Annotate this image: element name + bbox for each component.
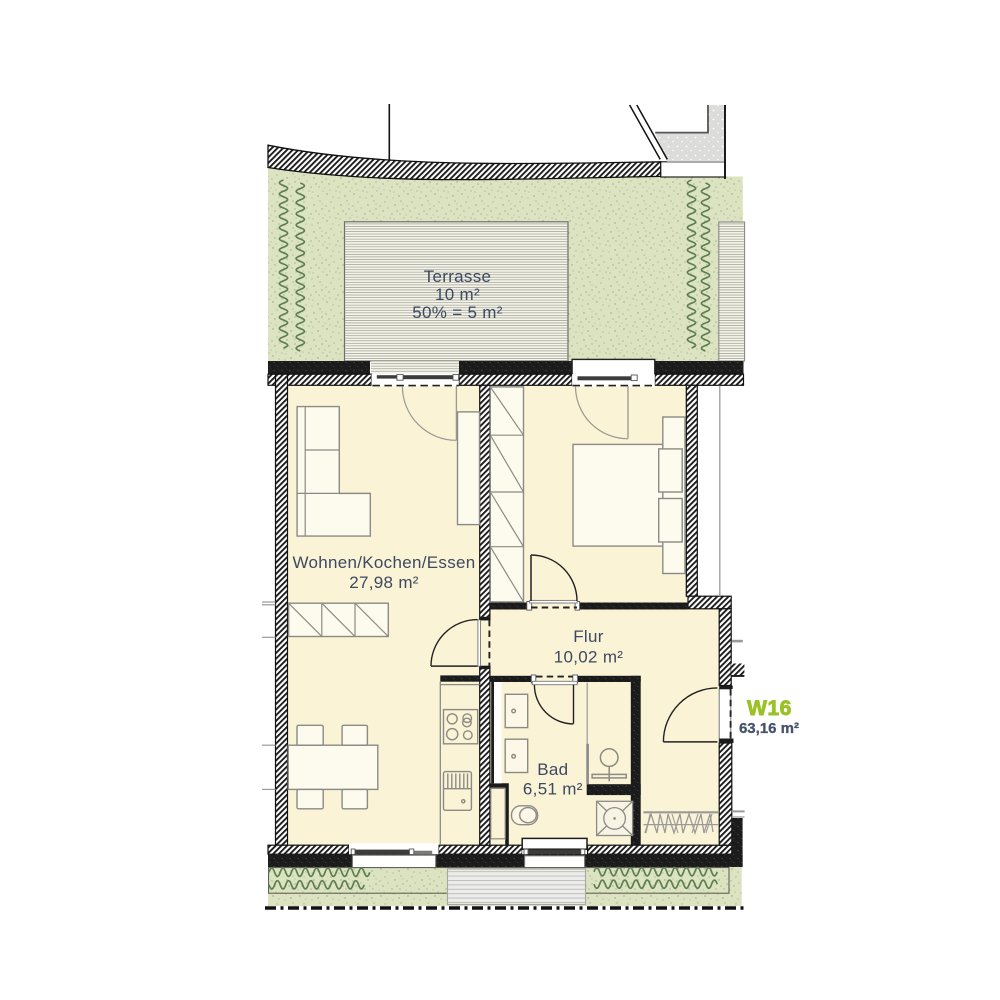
svg-text:50% = 5 m²: 50% = 5 m²: [412, 303, 502, 322]
svg-text:10,02 m²: 10,02 m²: [554, 648, 624, 667]
svg-text:63,16 m²: 63,16 m²: [739, 720, 799, 737]
svg-text:Terrasse: Terrasse: [424, 267, 492, 286]
svg-text:Flur: Flur: [573, 627, 604, 646]
svg-text:Wohnen/Kochen/Essen: Wohnen/Kochen/Essen: [292, 553, 475, 572]
svg-text:10 m²: 10 m²: [435, 285, 480, 304]
svg-text:6,51 m²: 6,51 m²: [523, 779, 583, 798]
svg-text:27,98 m²: 27,98 m²: [349, 573, 419, 592]
svg-text:W16: W16: [747, 697, 792, 720]
svg-text:Bad: Bad: [537, 760, 568, 779]
